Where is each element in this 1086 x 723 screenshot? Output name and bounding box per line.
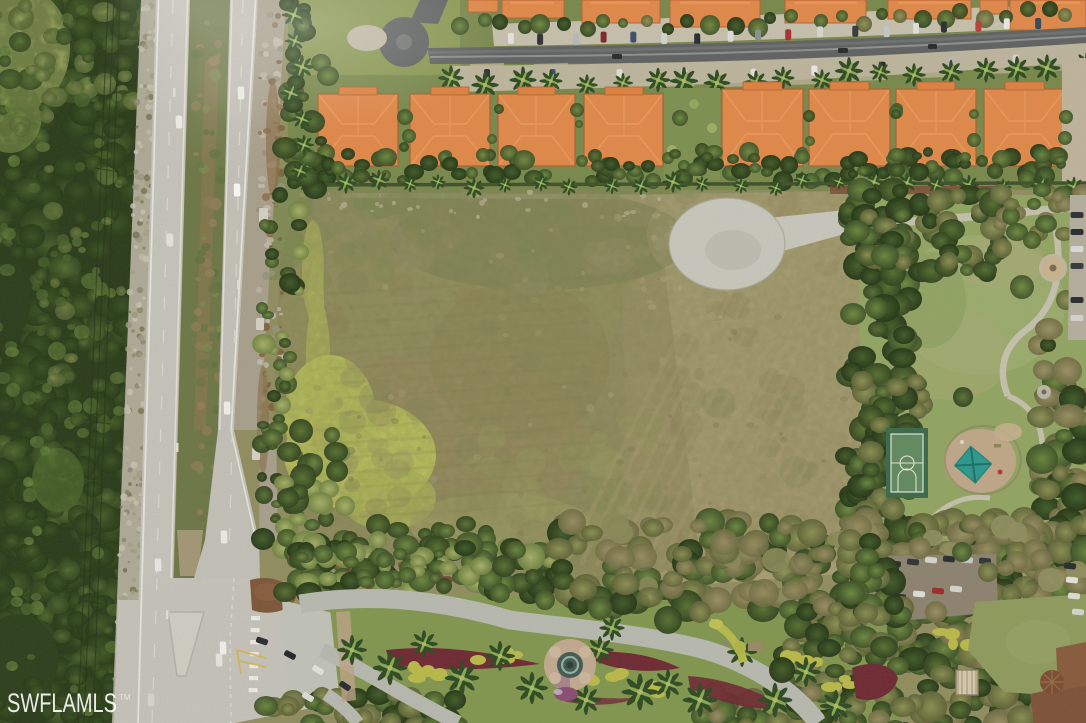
svg-text:TM: TM: [119, 693, 131, 702]
svg-text:SWFLAMLS: SWFLAMLS: [7, 688, 117, 718]
